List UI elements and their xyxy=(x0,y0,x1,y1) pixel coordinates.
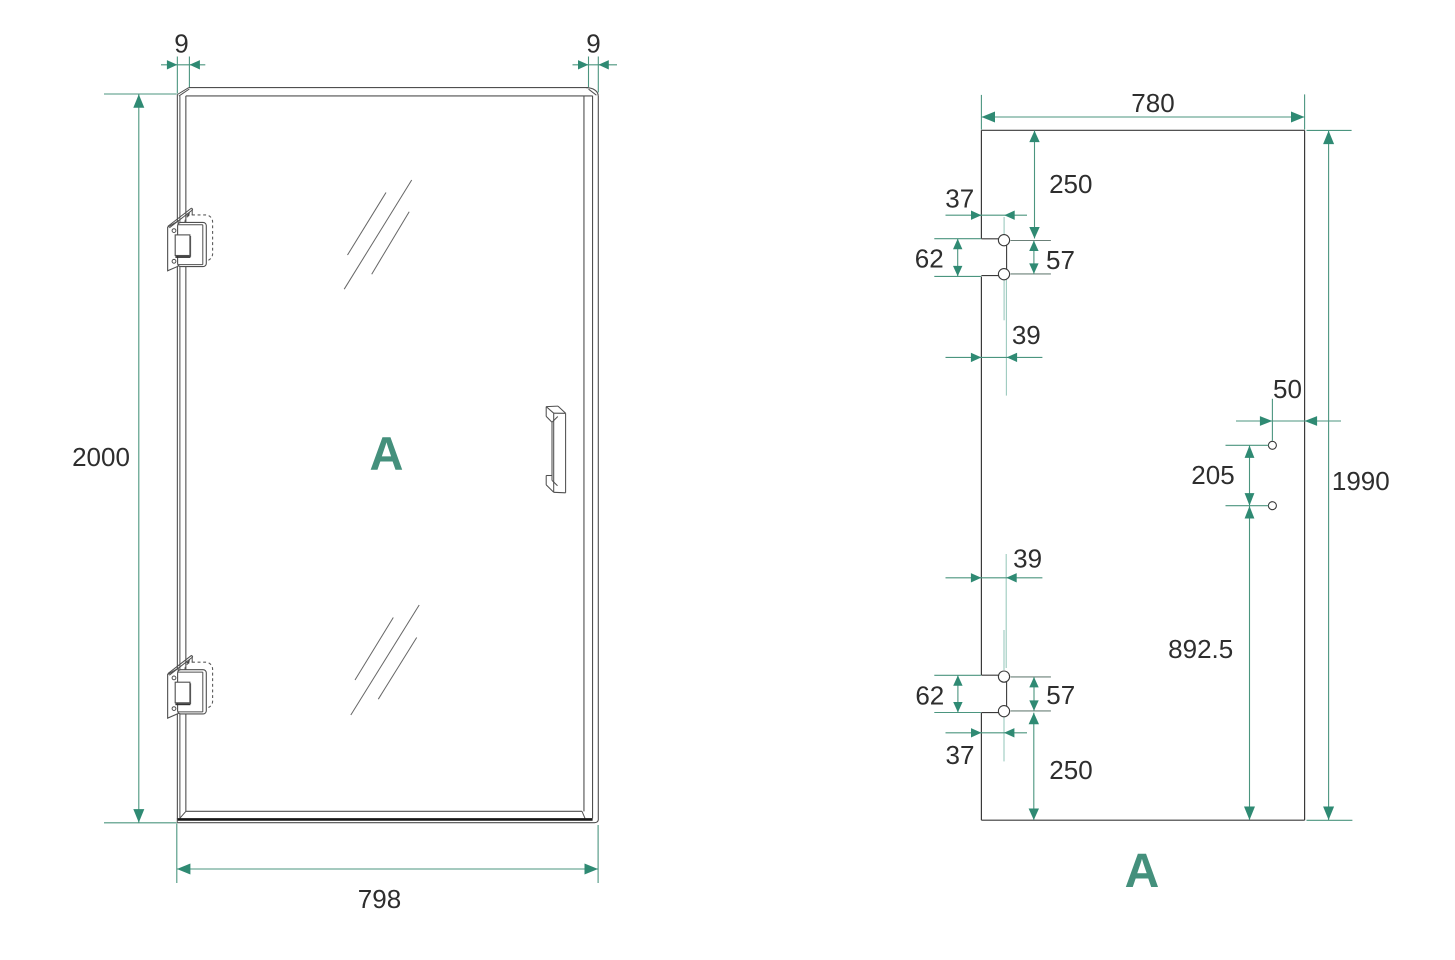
svg-text:39: 39 xyxy=(1012,320,1041,350)
svg-text:39: 39 xyxy=(1013,544,1042,574)
svg-text:9: 9 xyxy=(586,29,600,59)
svg-text:892.5: 892.5 xyxy=(1168,634,1233,664)
svg-text:780: 780 xyxy=(1131,88,1174,118)
svg-text:250: 250 xyxy=(1049,755,1092,785)
svg-text:57: 57 xyxy=(1046,680,1075,710)
svg-text:62: 62 xyxy=(915,244,944,274)
svg-text:37: 37 xyxy=(946,740,975,770)
svg-text:798: 798 xyxy=(358,884,401,914)
svg-text:62: 62 xyxy=(915,681,944,711)
svg-text:1990: 1990 xyxy=(1332,466,1390,496)
svg-text:250: 250 xyxy=(1049,169,1092,199)
svg-text:A: A xyxy=(370,427,404,480)
svg-text:A: A xyxy=(1125,845,1160,898)
svg-text:2000: 2000 xyxy=(72,442,130,472)
svg-text:57: 57 xyxy=(1046,245,1075,275)
svg-text:205: 205 xyxy=(1191,460,1234,490)
svg-text:50: 50 xyxy=(1273,374,1302,404)
svg-text:9: 9 xyxy=(174,29,188,59)
svg-text:37: 37 xyxy=(945,184,974,214)
